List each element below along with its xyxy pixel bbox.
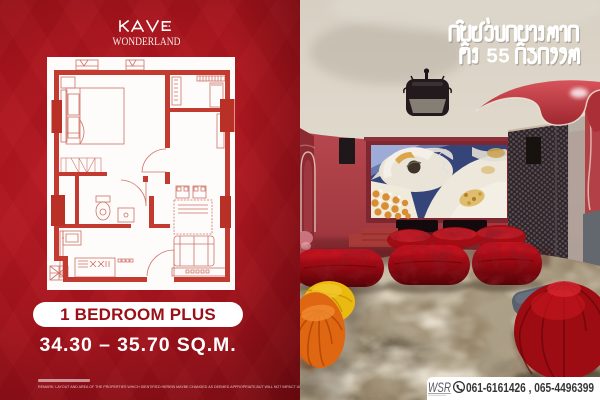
svg-text:WSR: WSR [428,380,451,395]
svg-text:55: 55 [486,45,510,68]
svg-text:061-6161426 , 065-4496399: 061-6161426 , 065-4496399 [466,380,594,395]
svg-text:WONDERLAND: WONDERLAND [113,34,181,48]
